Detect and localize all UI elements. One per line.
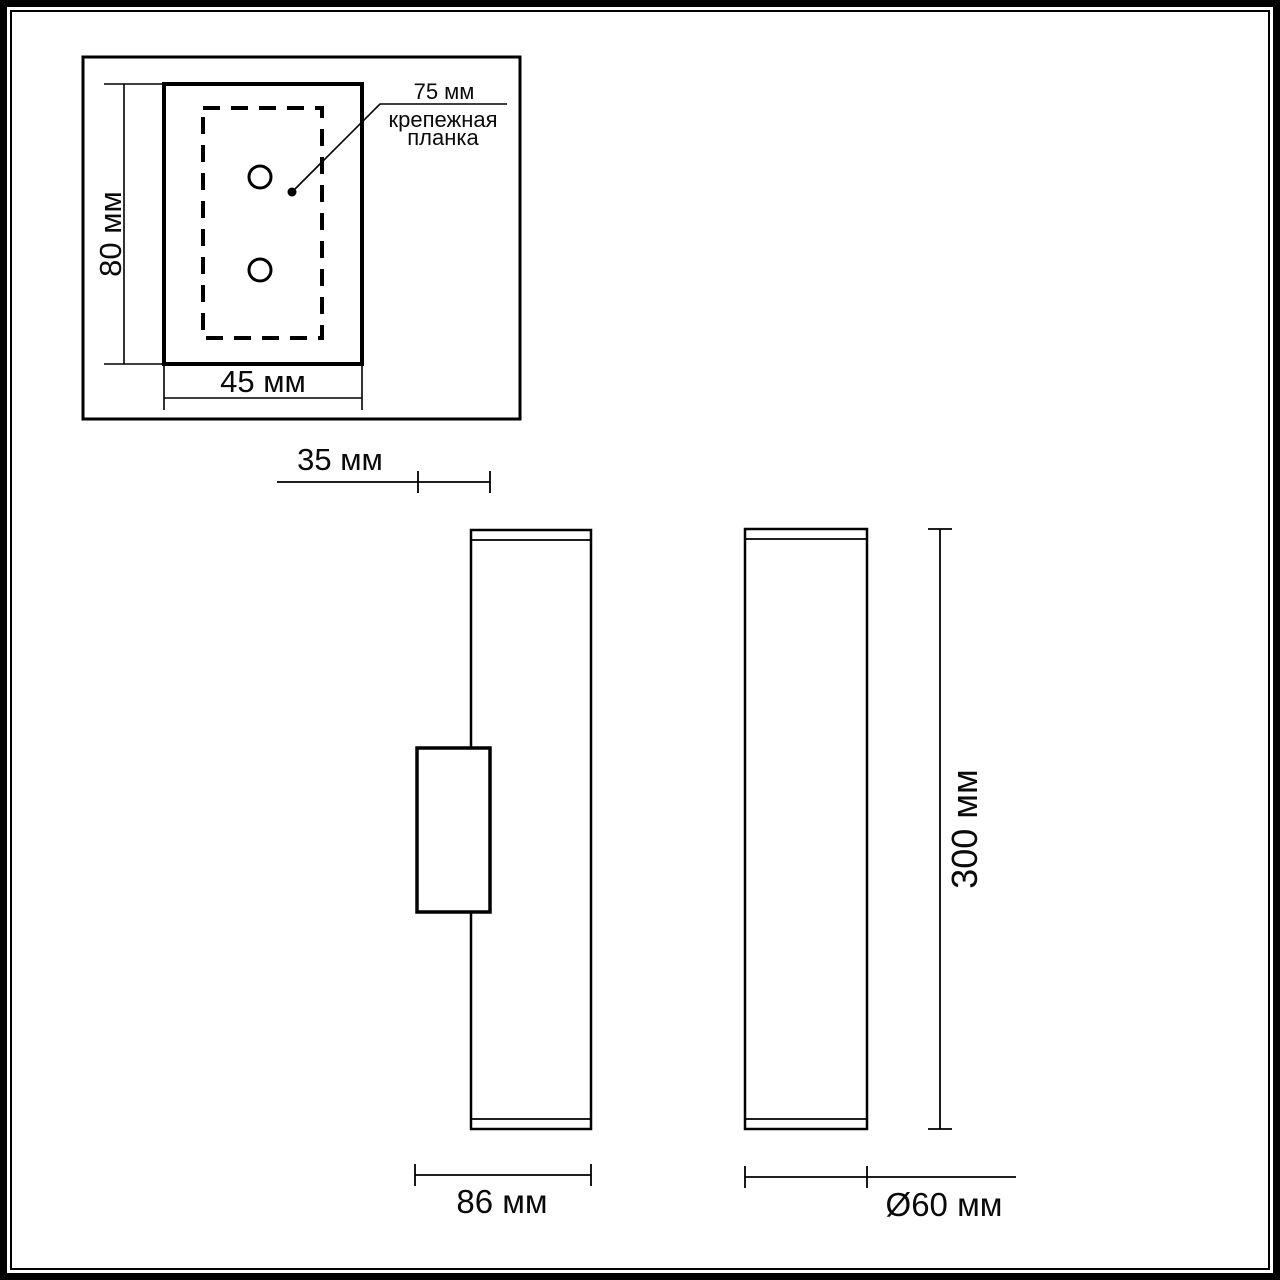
frame-outer-border bbox=[4, 4, 1277, 1277]
drawing-page: 75 мм крепежная планка 80 мм 45 мм 35 мм… bbox=[0, 0, 1280, 1280]
callout-value-label: 75 мм bbox=[414, 79, 475, 104]
side-view-mount-block bbox=[417, 748, 490, 912]
dim-80mm-label: 80 мм bbox=[93, 191, 128, 277]
front-view-body-outline bbox=[745, 529, 867, 1129]
dim-86mm-label: 86 мм bbox=[456, 1183, 547, 1220]
mounting-plate-dashed-outline bbox=[203, 108, 322, 338]
backplate-outline bbox=[164, 84, 362, 364]
frame-inner-border bbox=[11, 11, 1269, 1269]
screw-hole-top bbox=[249, 166, 271, 188]
dim-60mm-label: Ø60 мм bbox=[886, 1186, 1003, 1223]
dim-35mm-label: 35 мм bbox=[297, 442, 383, 477]
dim-45mm-label: 45 мм bbox=[220, 364, 306, 399]
technical-drawing: 75 мм крепежная планка 80 мм 45 мм 35 мм… bbox=[0, 0, 1280, 1280]
screw-hole-bottom bbox=[249, 259, 271, 281]
callout-name-line2: планка bbox=[407, 125, 479, 150]
callout-anchor-dot bbox=[288, 188, 297, 197]
dim-300mm-label: 300 мм bbox=[944, 769, 985, 889]
